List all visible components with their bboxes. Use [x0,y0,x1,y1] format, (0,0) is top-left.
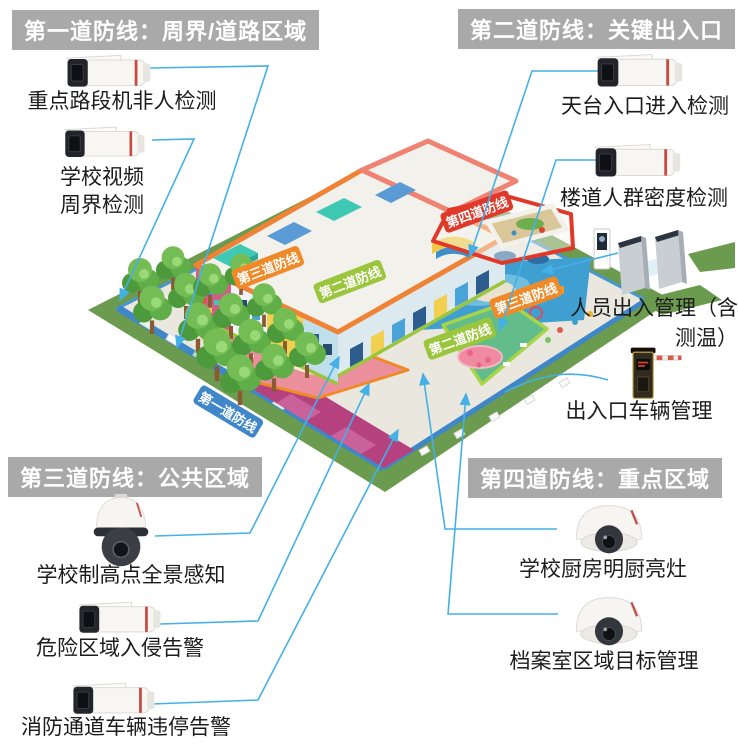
section-header-line1: 第一道防线：周界/道路区域 [12,10,319,50]
section-header-line2: 第二道防线：关键出入口 [458,9,735,49]
map-banner-line3-building: 第三道防线 [230,245,305,290]
bullet-camera-icon [60,120,148,164]
map-banner-line1: 第一道防线 [192,384,265,439]
svg-text:第三道防线: 第三道防线 [235,250,301,287]
school-building [196,141,549,384]
item-label-line: 周界检测 [60,194,144,217]
pink-court [198,310,408,398]
svg-text:第二道防线: 第二道防线 [427,321,493,357]
item-label: 天台入口进入检测 [552,93,738,121]
section-header-line3: 第三道防线：公共区域 [8,457,262,497]
map-banner-line2-zone: 第二道防线 [422,316,497,360]
perimeter-wall [118,308,384,468]
bullet-camera-icon [592,47,686,94]
item-label: 学校视频周界检测 [58,164,146,220]
svg-text:第二道防线: 第二道防线 [317,264,383,301]
bullet-camera-icon [74,595,164,640]
perimeter-panels [140,317,287,409]
item-label-line: 学校视频 [60,166,144,189]
item-label: 档案室区域目标管理 [504,648,704,676]
map-banner-line4: 第四道防线 [439,189,514,233]
fence-posts [419,378,570,456]
dome-camera-icon [564,592,654,650]
building-windows [350,270,489,367]
svg-text:第一道防线: 第一道防线 [196,389,259,435]
item-label-line: 人员出入管理（含 [570,297,738,320]
map-banner-line2-building: 第二道防线 [312,259,387,304]
connector-lines [120,66,618,704]
barrier-gate-icon [608,342,694,404]
ptz-dome-camera-icon [80,494,162,568]
section-header-line4: 第四道防线：重点区域 [468,458,722,498]
green-zone [443,302,547,384]
garden [279,272,425,346]
school-security-infographic: { "sections": [ { "title": "第一道防线：周界/道路区… [0,0,738,754]
svg-text:第四道防线: 第四道防线 [444,194,510,230]
bullet-camera-icon [590,137,684,184]
item-label: 重点路段机非人检测 [15,88,229,116]
svg-text:第三道防线: 第三道防线 [493,280,559,316]
dome-camera-icon [564,500,654,558]
item-label: 楼道人群密度检测 [550,185,738,213]
item-label: 消防通道车辆违停告警 [2,714,250,742]
track-strip [251,370,414,468]
item-label: 学校制高点全景感知 [12,562,250,590]
map-banner-line3-playground: 第三道防线 [488,275,563,319]
item-label: 危险区域入侵告警 [22,635,218,663]
item-label: 出入口车辆管理 [558,398,720,426]
trees [122,246,326,405]
item-label: 学校厨房明厨亮灶 [508,556,698,584]
